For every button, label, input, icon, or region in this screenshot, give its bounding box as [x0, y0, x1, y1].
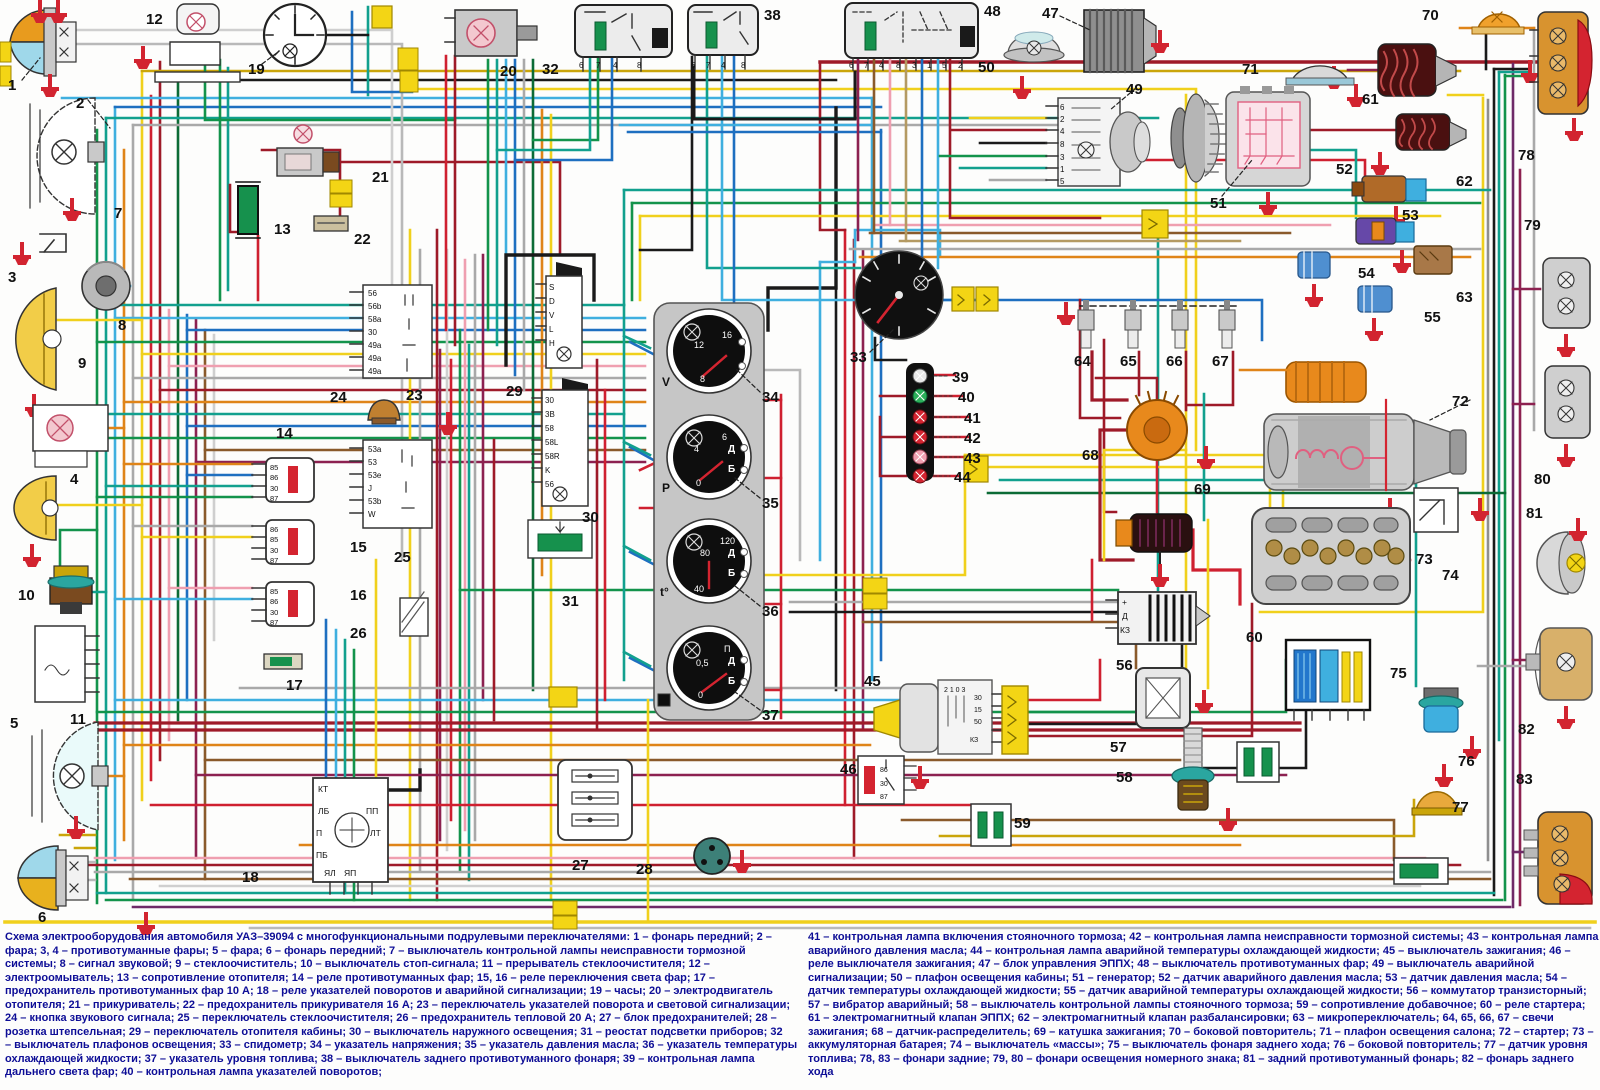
svg-text:56: 56 — [545, 480, 554, 489]
svg-text:13: 13 — [274, 221, 291, 238]
svg-text:8: 8 — [1060, 140, 1065, 149]
svg-text:57: 57 — [1110, 739, 1127, 756]
svg-text:73: 73 — [1416, 551, 1433, 568]
svg-text:Б: Б — [728, 464, 735, 475]
svg-text:2: 2 — [1060, 115, 1065, 124]
svg-text:23: 23 — [406, 387, 423, 404]
svg-text:18: 18 — [242, 869, 259, 886]
svg-text:52: 52 — [1336, 161, 1353, 178]
svg-text:КЗ: КЗ — [1120, 625, 1130, 635]
svg-text:4: 4 — [879, 61, 884, 70]
svg-text:8: 8 — [896, 61, 901, 70]
svg-text:6: 6 — [849, 61, 854, 70]
svg-text:5: 5 — [1060, 177, 1065, 186]
svg-text:43: 43 — [964, 450, 981, 467]
svg-text:30: 30 — [880, 781, 888, 788]
svg-text:D: D — [549, 297, 555, 306]
svg-text:15: 15 — [350, 539, 367, 556]
svg-text:53e: 53e — [368, 471, 382, 480]
svg-text:28: 28 — [636, 861, 653, 878]
svg-text:40: 40 — [694, 584, 704, 594]
svg-text:7: 7 — [114, 205, 122, 222]
svg-text:53b: 53b — [368, 497, 382, 506]
svg-text:87: 87 — [270, 556, 278, 565]
svg-text:H: H — [549, 339, 555, 348]
svg-text:30: 30 — [270, 546, 278, 555]
svg-text:J: J — [368, 484, 372, 493]
svg-text:27: 27 — [572, 857, 589, 874]
svg-text:6: 6 — [579, 61, 584, 70]
svg-text:ЛТ: ЛТ — [370, 828, 381, 838]
svg-text:П: П — [316, 828, 322, 838]
svg-text:ПБ: ПБ — [316, 850, 328, 860]
svg-text:85: 85 — [270, 587, 278, 596]
svg-text:74: 74 — [1442, 567, 1459, 584]
svg-text:6: 6 — [1060, 103, 1065, 112]
svg-text:4: 4 — [70, 471, 79, 488]
svg-text:50: 50 — [974, 719, 982, 726]
svg-text:1: 1 — [927, 61, 932, 70]
svg-text:V: V — [549, 311, 555, 320]
svg-text:1: 1 — [8, 77, 16, 94]
svg-text:8: 8 — [700, 374, 705, 384]
svg-text:W: W — [368, 510, 376, 519]
svg-text:75: 75 — [1390, 665, 1407, 682]
svg-text:6: 6 — [38, 909, 46, 926]
svg-text:56b: 56b — [368, 302, 382, 311]
svg-text:42: 42 — [964, 430, 981, 447]
svg-text:7: 7 — [596, 61, 601, 70]
svg-text:V: V — [662, 375, 670, 389]
svg-text:16: 16 — [722, 330, 732, 340]
svg-text:17: 17 — [286, 677, 303, 694]
svg-text:КЗ: КЗ — [970, 737, 978, 744]
svg-text:12: 12 — [694, 340, 704, 350]
svg-text:69: 69 — [1194, 481, 1211, 498]
svg-text:ПП: ПП — [366, 806, 378, 816]
svg-text:30: 30 — [368, 328, 377, 337]
svg-text:3: 3 — [1060, 153, 1065, 162]
svg-text:49a: 49a — [368, 367, 382, 376]
svg-text:4: 4 — [721, 61, 726, 70]
svg-text:ЛБ: ЛБ — [318, 806, 330, 816]
svg-text:S: S — [549, 283, 554, 292]
svg-text:64: 64 — [1074, 353, 1091, 370]
svg-text:30: 30 — [974, 695, 982, 702]
svg-text:ЯП: ЯП — [344, 868, 356, 878]
svg-text:37: 37 — [762, 707, 779, 724]
svg-text:Д: Д — [728, 656, 735, 667]
svg-text:53: 53 — [368, 458, 377, 467]
svg-text:12: 12 — [146, 11, 163, 28]
svg-text:t°: t° — [660, 585, 669, 599]
svg-text:2: 2 — [958, 61, 963, 70]
svg-text:30: 30 — [270, 608, 278, 617]
svg-text:54: 54 — [1358, 265, 1375, 282]
svg-text:87: 87 — [880, 794, 888, 801]
svg-text:66: 66 — [1166, 353, 1183, 370]
svg-text:7: 7 — [864, 61, 869, 70]
svg-text:4: 4 — [694, 444, 699, 454]
svg-text:Б: Б — [728, 568, 735, 579]
svg-text:83: 83 — [1516, 771, 1533, 788]
svg-text:58L: 58L — [545, 438, 559, 447]
svg-text:31: 31 — [562, 593, 579, 610]
svg-text:58R: 58R — [545, 452, 560, 461]
svg-text:Д: Д — [1122, 611, 1128, 621]
svg-text:24: 24 — [330, 389, 347, 406]
svg-text:30: 30 — [582, 509, 599, 526]
svg-text:53: 53 — [1402, 207, 1419, 224]
svg-text:50: 50 — [978, 59, 995, 76]
svg-text:36: 36 — [762, 603, 779, 620]
svg-text:35: 35 — [762, 495, 779, 512]
svg-text:78: 78 — [1518, 147, 1535, 164]
svg-text:51: 51 — [1210, 195, 1227, 212]
svg-text:80: 80 — [1534, 471, 1551, 488]
svg-text:58: 58 — [545, 424, 554, 433]
svg-text:63: 63 — [1456, 289, 1473, 306]
svg-text:33: 33 — [850, 349, 867, 366]
svg-text:86: 86 — [270, 525, 278, 534]
svg-text:38: 38 — [764, 7, 781, 24]
svg-text:44: 44 — [954, 469, 971, 486]
svg-text:46: 46 — [840, 761, 857, 778]
svg-text:67: 67 — [1212, 353, 1229, 370]
svg-text:Б: Б — [728, 676, 735, 687]
svg-text:55: 55 — [1424, 309, 1441, 326]
svg-text:79: 79 — [1524, 217, 1541, 234]
svg-text:86: 86 — [880, 767, 888, 774]
svg-text:59: 59 — [1014, 815, 1031, 832]
svg-text:39: 39 — [952, 369, 969, 386]
svg-text:34: 34 — [762, 389, 779, 406]
svg-text:70: 70 — [1422, 7, 1439, 24]
svg-text:58a: 58a — [368, 315, 382, 324]
svg-text:30: 30 — [545, 396, 554, 405]
svg-text:3: 3 — [8, 269, 16, 286]
svg-text:25: 25 — [394, 549, 411, 566]
svg-text:15: 15 — [974, 707, 982, 714]
svg-text:4: 4 — [613, 61, 618, 70]
svg-text:K: K — [545, 466, 551, 475]
svg-text:Д: Д — [728, 444, 735, 455]
svg-text:P: P — [662, 481, 670, 495]
svg-text:1: 1 — [1060, 165, 1065, 174]
svg-text:86: 86 — [270, 597, 278, 606]
svg-text:56: 56 — [368, 289, 377, 298]
svg-text:ЯЛ: ЯЛ — [324, 868, 336, 878]
svg-text:41: 41 — [964, 410, 981, 427]
svg-text:3B: 3B — [545, 410, 555, 419]
svg-text:47: 47 — [1042, 5, 1059, 22]
svg-text:6: 6 — [722, 432, 727, 442]
svg-text:56: 56 — [1116, 657, 1133, 674]
svg-text:21: 21 — [372, 169, 389, 186]
svg-text:45: 45 — [864, 673, 881, 690]
svg-text:Д: Д — [728, 548, 735, 559]
svg-text:60: 60 — [1246, 629, 1263, 646]
svg-text:76: 76 — [1458, 753, 1475, 770]
svg-text:87: 87 — [270, 618, 278, 627]
svg-text:0: 0 — [696, 478, 701, 488]
svg-text:48: 48 — [984, 3, 1001, 20]
svg-text:8: 8 — [118, 317, 126, 334]
svg-text:80: 80 — [700, 548, 710, 558]
svg-text:5: 5 — [942, 61, 947, 70]
svg-text:П: П — [724, 644, 730, 654]
svg-text:26: 26 — [350, 625, 367, 642]
svg-text:61: 61 — [1362, 91, 1379, 108]
svg-text:0,5: 0,5 — [696, 658, 709, 668]
svg-text:КТ: КТ — [318, 784, 328, 794]
svg-text:85: 85 — [270, 463, 278, 472]
svg-text:58: 58 — [1116, 769, 1133, 786]
svg-text:4: 4 — [1060, 127, 1065, 136]
svg-text:8: 8 — [637, 61, 642, 70]
svg-text:120: 120 — [720, 536, 735, 546]
svg-text:5: 5 — [10, 715, 18, 732]
svg-text:49a: 49a — [368, 354, 382, 363]
svg-text:71: 71 — [1242, 61, 1259, 78]
svg-text:11: 11 — [70, 711, 86, 728]
svg-text:8: 8 — [741, 61, 746, 70]
svg-text:20: 20 — [500, 63, 517, 80]
svg-text:32: 32 — [542, 61, 559, 78]
svg-text:14: 14 — [276, 425, 293, 442]
svg-text:86: 86 — [270, 473, 278, 482]
svg-text:+: + — [1122, 597, 1127, 607]
svg-text:68: 68 — [1082, 447, 1099, 464]
svg-text:7: 7 — [706, 61, 711, 70]
svg-text:0: 0 — [698, 690, 703, 700]
svg-text:2 1 0 3: 2 1 0 3 — [944, 687, 966, 694]
svg-text:10: 10 — [18, 587, 35, 604]
svg-text:53a: 53a — [368, 445, 382, 454]
svg-text:82: 82 — [1518, 721, 1535, 738]
svg-text:16: 16 — [350, 587, 367, 604]
svg-text:49a: 49a — [368, 341, 382, 350]
svg-text:9: 9 — [78, 355, 86, 372]
svg-text:87: 87 — [270, 494, 278, 503]
svg-text:40: 40 — [958, 389, 975, 406]
svg-text:29: 29 — [506, 383, 523, 400]
svg-text:L: L — [549, 325, 554, 334]
svg-text:30: 30 — [270, 484, 278, 493]
svg-text:62: 62 — [1456, 173, 1473, 190]
svg-text:6: 6 — [691, 61, 696, 70]
svg-text:2: 2 — [76, 95, 84, 112]
svg-text:65: 65 — [1120, 353, 1137, 370]
svg-text:77: 77 — [1452, 799, 1469, 816]
svg-text:22: 22 — [354, 231, 371, 248]
svg-text:81: 81 — [1526, 505, 1543, 522]
svg-text:3: 3 — [912, 61, 917, 70]
svg-text:85: 85 — [270, 535, 278, 544]
